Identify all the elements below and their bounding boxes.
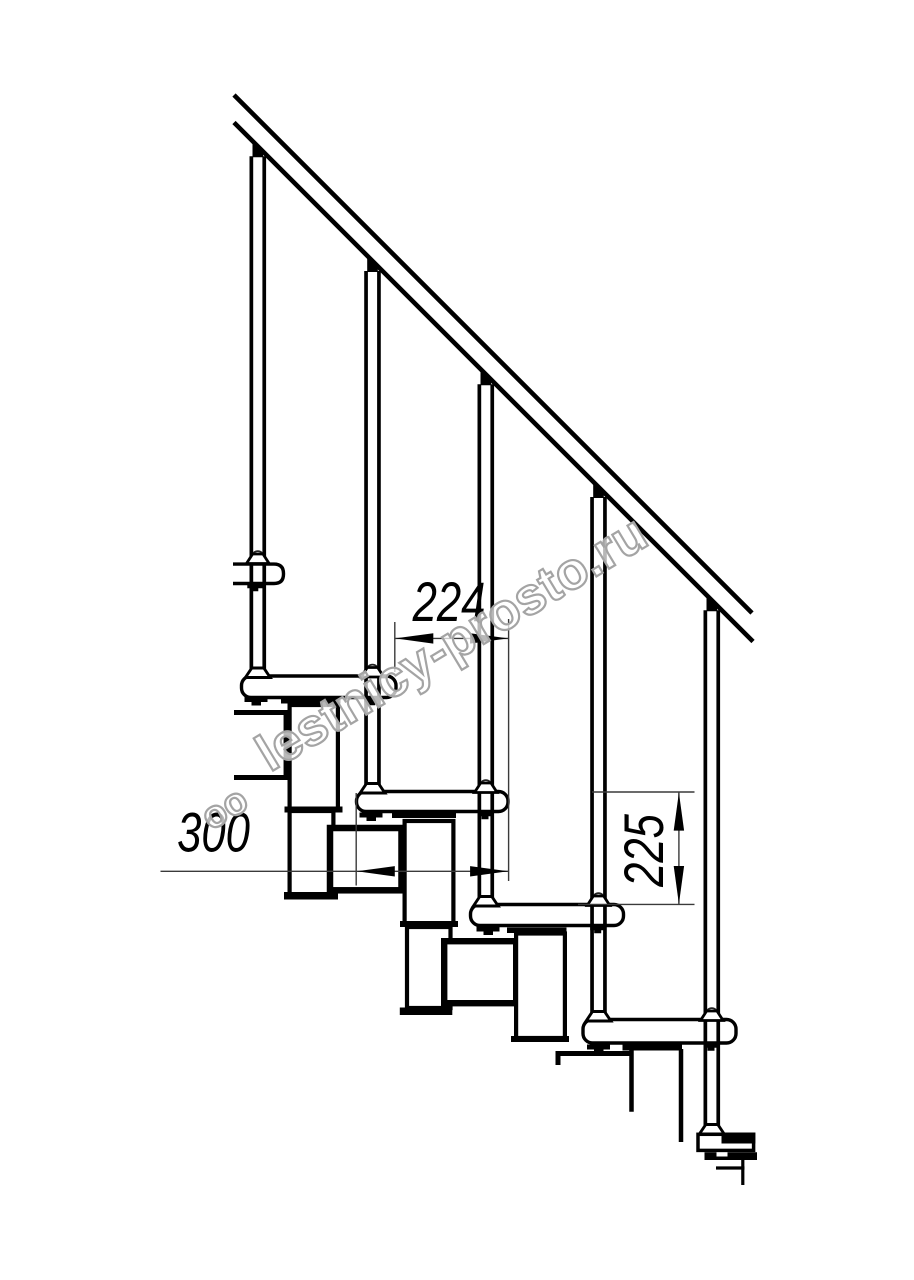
svg-text:225: 225 xyxy=(613,813,675,888)
